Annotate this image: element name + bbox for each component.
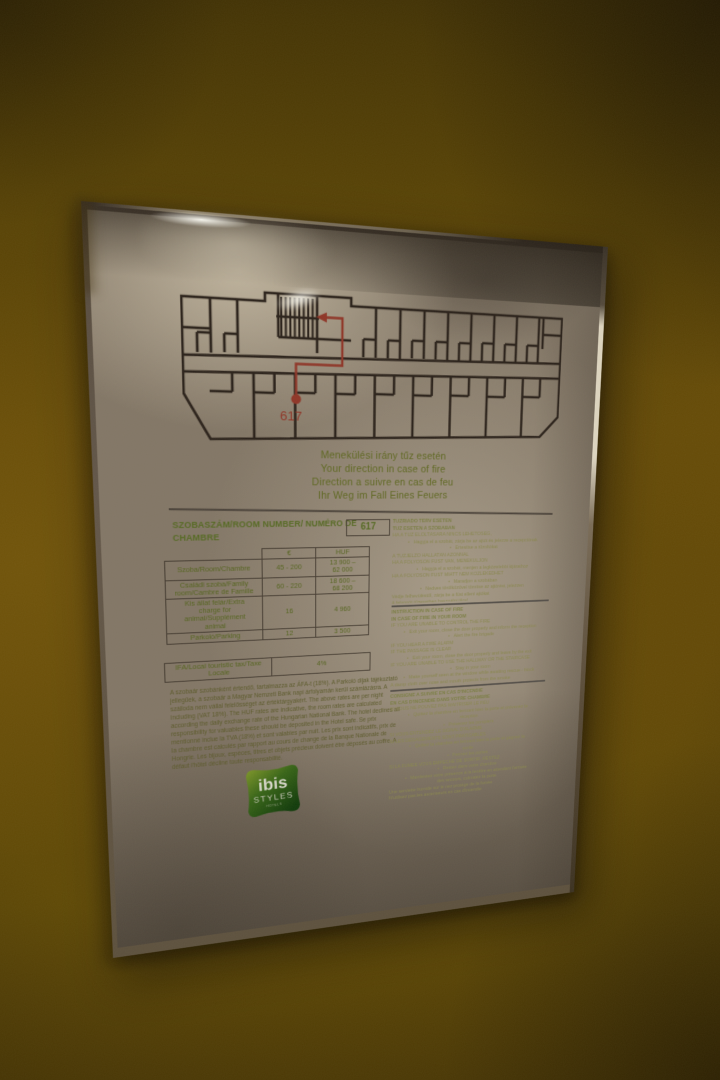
svg-text:617: 617 [280,408,302,424]
